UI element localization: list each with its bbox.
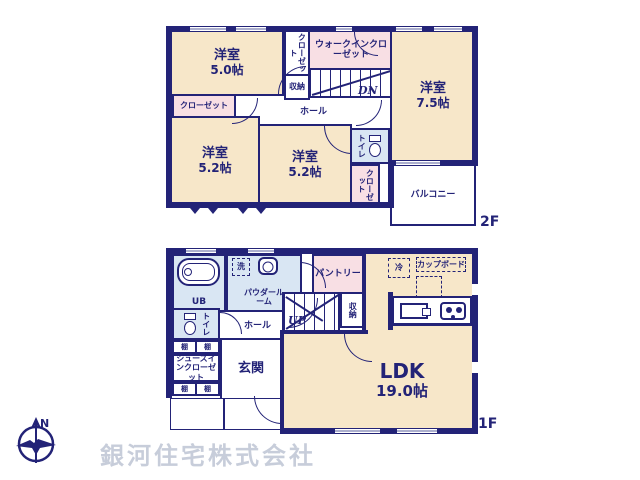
shelf-cell: 棚 [172,382,197,396]
toilet-label: トイレ [201,311,209,337]
stove-icon [440,302,466,320]
wall-segment [166,248,172,398]
room-1f-storage: 収納 [340,292,364,328]
room-label: 洋室 [214,49,240,64]
shelf-cell: 棚 [195,340,220,354]
floor-1f-tag: 1F [478,416,497,432]
window-mark [397,429,437,433]
ldk-size: 19.0帖 [376,383,428,400]
room-size: 5.0帖 [210,64,243,78]
ldk-label-group: LDK 19.0帖 [350,356,454,404]
room-size: 7.5帖 [416,97,449,111]
room-2f-toilet: トイレ [350,128,390,164]
room-2f-closet-balcony-side: クローゼット [350,164,380,206]
wall-segment [362,254,366,332]
vent-mark [472,362,478,373]
wall-segment [388,160,394,208]
bathtub-icon [177,258,220,286]
fridge-label: 冷 [395,263,403,272]
laundry-label: 洗 [237,262,245,271]
hall-1f-label: ホール [244,318,271,331]
balcony: バルコニー [390,164,476,226]
room-1f-toilet: トイレ [172,308,220,340]
stairs-diagonal [312,69,396,96]
toilet-icon [182,313,198,335]
cupboard-lower-box [416,276,442,298]
porch-step-line [223,399,225,429]
shelf-label: 棚 [181,385,188,393]
walkin-closet-label: ウォークインクローゼット [312,40,390,61]
room-2f-bedroom-5_2a: 洋室 5.2帖 [170,116,260,206]
floor-2f-tag: 2F [480,214,499,230]
room-2f-closet-left: クローゼット [172,94,236,118]
wall-segment [166,202,394,208]
floor-plan-canvas: 洋室 5.0帖 クローゼット 収納 ウォークインクローゼット DN 洋室 7.5… [0,0,640,480]
shoes-in-closet-label: シューズインクローゼット [173,354,219,382]
shutter-mark [238,208,248,214]
shelf-label: 棚 [204,385,211,393]
shutter-mark [190,208,200,214]
room-label: 洋室 [420,82,446,97]
vent-mark [472,284,478,295]
wall-segment [472,26,478,166]
hall-2f-label: ホール [300,104,327,117]
wall-segment [472,248,478,434]
window-mark [335,429,380,433]
shelf-cell: 棚 [195,382,220,396]
room-label: 洋室 [202,147,228,162]
sink-icon [258,257,278,275]
stairs-down-label: DN [358,84,378,97]
cupboard-box: カップボード [416,257,466,272]
room-2f-bedroom-7_5: 洋室 7.5帖 [390,30,476,162]
room-size: 5.2帖 [288,166,321,180]
room-size: 5.2帖 [198,162,231,176]
shelf-label: 棚 [204,343,211,351]
door-arc [220,312,242,334]
room-1f-shoes-in-closet: シューズインクローゼット [172,354,220,382]
entrance-label: 玄関 [238,362,264,377]
closet-label: クローゼット [180,101,228,110]
room-2f-walkin-closet: ウォークインクローゼット [308,30,394,70]
company-watermark: 銀河住宅株式会社 [100,436,316,471]
kitchen-counter [392,296,472,326]
shelf-cell: 棚 [172,340,197,354]
kitchen-sink-icon [400,303,428,319]
toilet-label: トイレ [357,132,365,160]
window-mark [396,161,440,165]
ldk-name: LDK [380,360,425,383]
window-mark [336,27,352,31]
window-mark [190,27,226,31]
compass-north-label: N [40,417,49,430]
shelf-label: 棚 [181,343,188,351]
door-arc [356,100,382,126]
window-mark [186,249,216,253]
window-mark [248,249,274,253]
wall-segment [166,26,172,208]
cupboard-label: カップボード [417,260,465,269]
shutter-mark [256,208,266,214]
toilet-icon [367,135,383,157]
window-mark [236,27,266,31]
balcony-label: バルコニー [411,190,456,200]
room-label: 洋室 [292,151,318,166]
shutter-mark [208,208,218,214]
stairs-2f [308,68,394,98]
window-mark [396,27,422,31]
storage-label: 収納 [348,299,356,321]
closet-label: クローゼット [357,166,374,204]
window-mark [434,27,462,31]
compass-icon: N [10,414,62,470]
room-1f-entrance: 玄関 [220,338,282,400]
laundry-box: 洗 [232,258,250,276]
powder-room-label: パウダールーム [242,288,286,306]
unit-bath-label: UB [192,297,206,307]
room-2f-bedroom-5_0: 洋室 5.0帖 [170,30,284,96]
fridge-box: 冷 [388,258,410,278]
